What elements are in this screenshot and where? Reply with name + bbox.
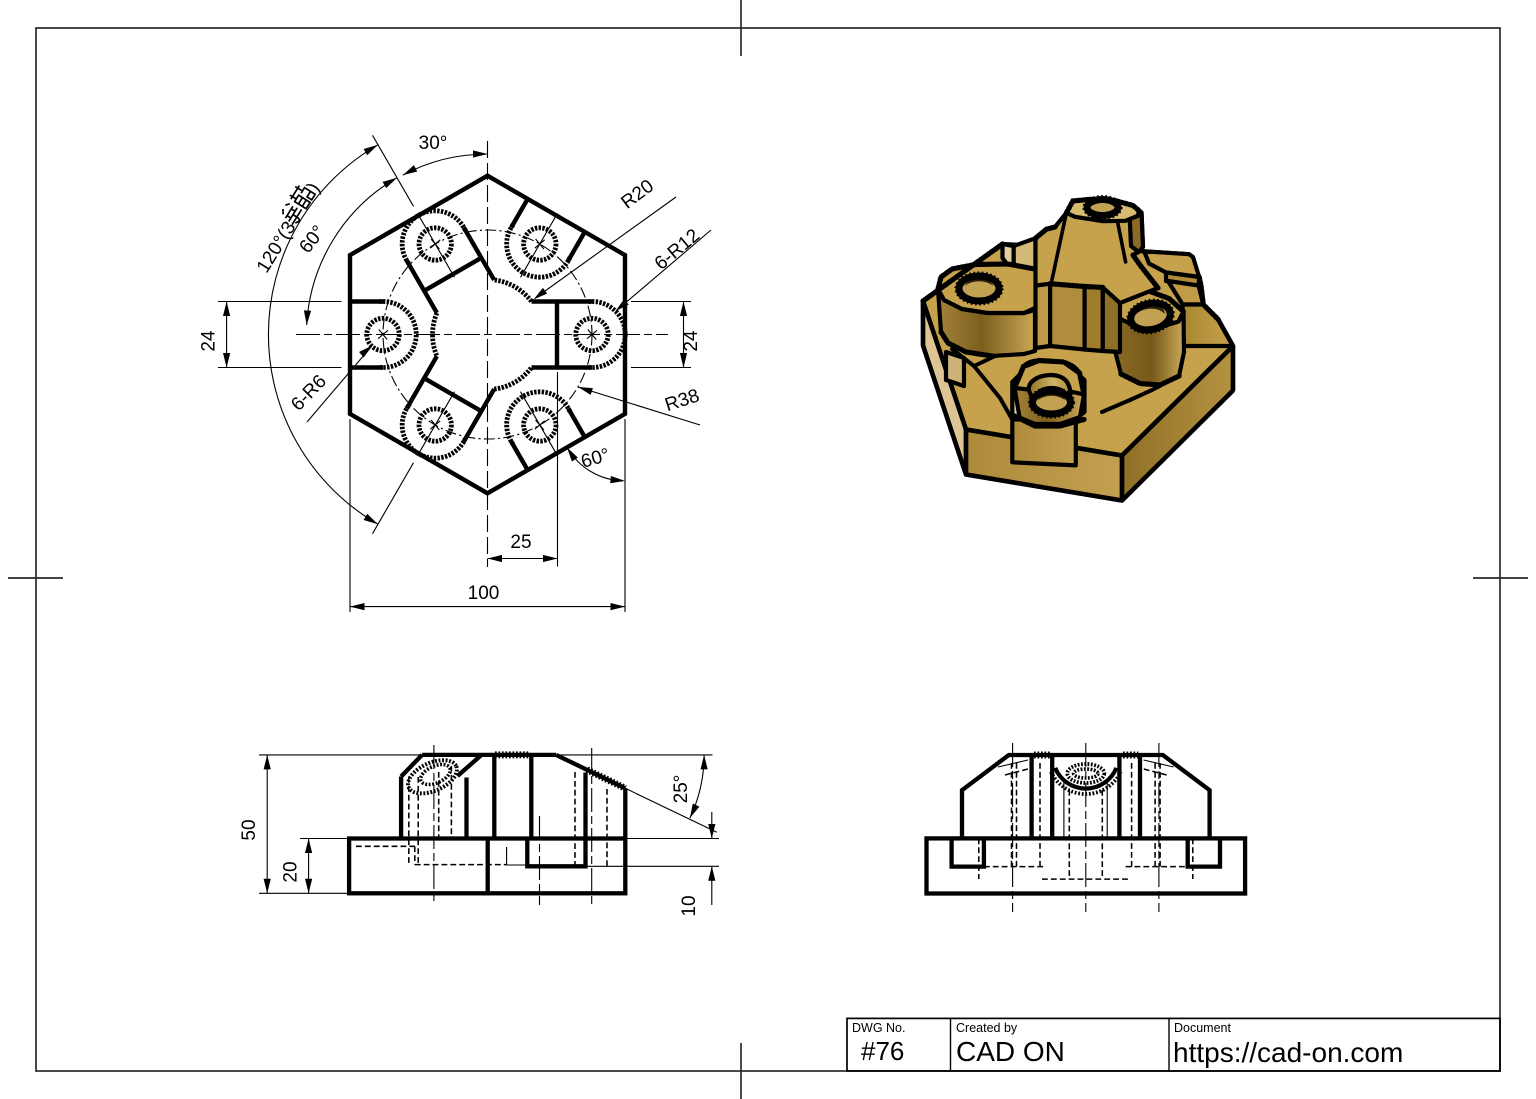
svg-text:60°: 60° (296, 222, 330, 258)
svg-text:25: 25 (510, 532, 531, 553)
svg-text:R20: R20 (617, 176, 657, 214)
svg-text:Document: Document (1174, 1021, 1231, 1035)
svg-text:24: 24 (199, 330, 220, 352)
svg-text:6-R6: 6-R6 (287, 371, 331, 415)
svg-text:6-R12: 6-R12 (651, 225, 704, 274)
svg-text:Created by: Created by (956, 1021, 1018, 1035)
svg-text:20: 20 (281, 861, 302, 882)
svg-text:10: 10 (679, 895, 700, 916)
svg-text:25°: 25° (671, 775, 692, 804)
svg-text:DWG No.: DWG No. (852, 1021, 905, 1035)
svg-text:100: 100 (468, 583, 500, 604)
svg-text:R38: R38 (662, 385, 702, 416)
svg-text:#76: #76 (861, 1036, 904, 1066)
svg-text:30°: 30° (419, 133, 448, 154)
svg-text:120°(3: 120°(3 (253, 218, 301, 277)
svg-text:60°: 60° (579, 445, 612, 473)
svg-text:24: 24 (681, 330, 702, 352)
svg-text:https://cad-on.com: https://cad-on.com (1173, 1037, 1403, 1068)
svg-text:CAD ON: CAD ON (956, 1036, 1065, 1067)
svg-text:50: 50 (239, 819, 260, 840)
